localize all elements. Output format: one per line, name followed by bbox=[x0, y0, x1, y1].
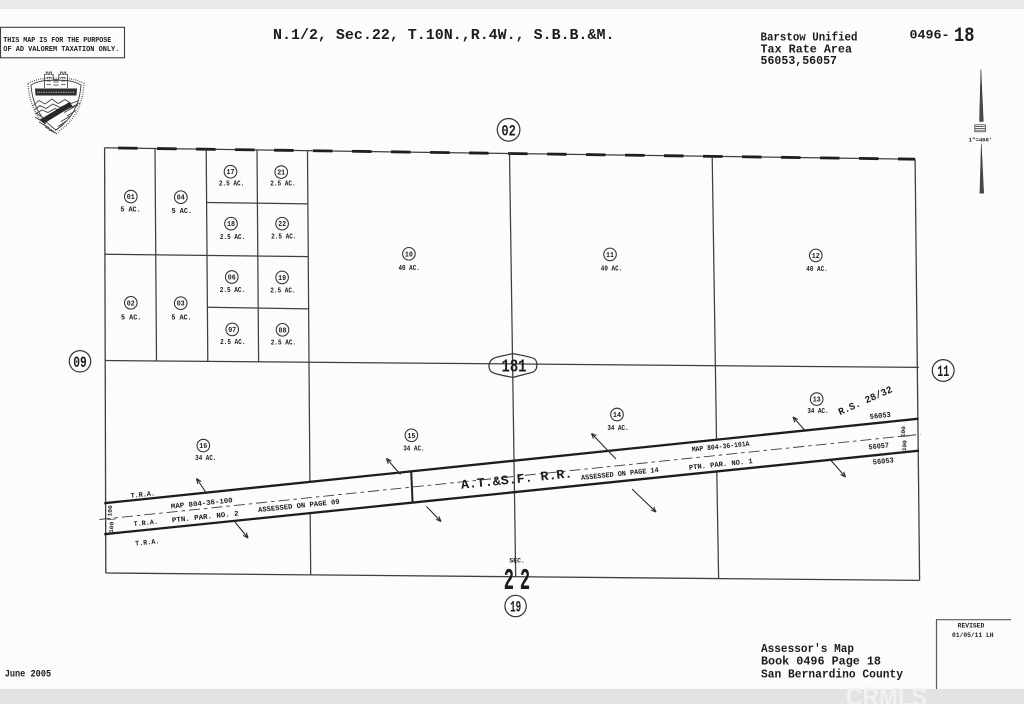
svg-text:5 AC.: 5 AC. bbox=[120, 206, 140, 214]
svg-text:22: 22 bbox=[278, 221, 286, 229]
svg-text:2.5 AC.: 2.5 AC. bbox=[270, 180, 295, 188]
svg-text:02: 02 bbox=[501, 122, 516, 140]
svg-text:19: 19 bbox=[510, 599, 521, 617]
svg-text:2.5 AC.: 2.5 AC. bbox=[270, 287, 295, 295]
svg-text:56053: 56053 bbox=[873, 457, 895, 467]
svg-text:2: 2 bbox=[504, 563, 514, 599]
svg-text:2.5 AC.: 2.5 AC. bbox=[219, 180, 244, 188]
svg-text:2.5 AC.: 2.5 AC. bbox=[220, 287, 245, 295]
svg-text:100: 100 bbox=[900, 425, 908, 437]
svg-text:14: 14 bbox=[613, 412, 621, 420]
svg-text:07: 07 bbox=[228, 327, 236, 335]
svg-text:19: 19 bbox=[278, 275, 286, 283]
svg-text:40 AC.: 40 AC. bbox=[806, 266, 828, 274]
svg-text:34 AC.: 34 AC. bbox=[403, 445, 424, 453]
svg-text:08: 08 bbox=[279, 327, 287, 335]
svg-text:12: 12 bbox=[812, 253, 820, 261]
svg-text:18: 18 bbox=[954, 25, 975, 48]
svg-text:2.5 AC.: 2.5 AC. bbox=[271, 233, 296, 241]
svg-text:2.5 AC.: 2.5 AC. bbox=[271, 340, 296, 348]
svg-text:T.R.A.: T.R.A. bbox=[133, 519, 158, 529]
svg-text:REVISED: REVISED bbox=[958, 623, 985, 630]
svg-text:02: 02 bbox=[127, 300, 135, 308]
svg-text:40 AC.: 40 AC. bbox=[601, 266, 623, 274]
svg-text:0496-: 0496- bbox=[910, 28, 950, 43]
svg-text:04: 04 bbox=[177, 195, 185, 203]
svg-text:100: 100 bbox=[901, 439, 909, 451]
svg-text:09: 09 bbox=[73, 354, 87, 372]
svg-text:34 AC.: 34 AC. bbox=[195, 455, 216, 463]
svg-text:03: 03 bbox=[177, 301, 185, 309]
svg-text:100: 100 bbox=[106, 505, 114, 517]
svg-text:2: 2 bbox=[520, 563, 530, 599]
svg-text:N.1/2, Sec.22, T.10N.,R.4W., S: N.1/2, Sec.22, T.10N.,R.4W., S.B.B.&M. bbox=[273, 28, 615, 44]
svg-text:13: 13 bbox=[813, 397, 821, 405]
svg-text:11: 11 bbox=[937, 363, 949, 381]
svg-text:40 AC.: 40 AC. bbox=[398, 265, 420, 273]
svg-text:THIS MAP IS FOR THE PURPOSE: THIS MAP IS FOR THE PURPOSE bbox=[3, 37, 111, 45]
svg-text:5 AC.: 5 AC. bbox=[171, 314, 191, 322]
svg-text:01/05/11 LH: 01/05/11 LH bbox=[952, 632, 994, 639]
svg-text:100: 100 bbox=[108, 521, 116, 533]
svg-text:56057: 56057 bbox=[868, 442, 889, 452]
svg-text:15: 15 bbox=[407, 433, 415, 441]
svg-text:T.R.A.: T.R.A. bbox=[135, 538, 160, 548]
svg-text:CRMLS: CRMLS bbox=[846, 682, 927, 704]
svg-text:21: 21 bbox=[277, 170, 285, 178]
svg-text:2.5 AC.: 2.5 AC. bbox=[220, 339, 245, 347]
svg-text:June 2005: June 2005 bbox=[5, 669, 52, 681]
svg-text:5 AC.: 5 AC. bbox=[172, 208, 192, 216]
svg-text:16: 16 bbox=[199, 443, 207, 451]
svg-text:5 AC.: 5 AC. bbox=[121, 314, 141, 322]
svg-text:OF AD VALOREM TAXATION ONLY.: OF AD VALOREM TAXATION ONLY. bbox=[3, 46, 119, 54]
svg-text:Assessor's Map: Assessor's Map bbox=[761, 643, 854, 656]
svg-text:06: 06 bbox=[228, 275, 236, 283]
svg-text:ASSESSED ON PAGE 09: ASSESSED ON PAGE 09 bbox=[258, 499, 340, 515]
svg-text:17: 17 bbox=[227, 169, 235, 177]
svg-text:181: 181 bbox=[502, 357, 527, 377]
svg-text:2.5 AC.: 2.5 AC. bbox=[220, 234, 245, 242]
svg-text:01: 01 bbox=[127, 194, 135, 202]
svg-text:56053: 56053 bbox=[870, 412, 892, 422]
svg-text:34 AC.: 34 AC. bbox=[807, 408, 828, 416]
svg-text:10: 10 bbox=[405, 251, 413, 259]
svg-text:MAP 804-36-100: MAP 804-36-100 bbox=[171, 497, 233, 511]
svg-text:18: 18 bbox=[227, 221, 235, 229]
svg-text:34 AC.: 34 AC. bbox=[607, 425, 628, 433]
svg-text:11: 11 bbox=[606, 252, 614, 260]
svg-text:San Bernardino County: San Bernardino County bbox=[761, 668, 903, 681]
svg-text:Book 0496 Page 18: Book 0496 Page 18 bbox=[761, 656, 881, 669]
svg-text:1"=400': 1"=400' bbox=[969, 137, 993, 144]
svg-text:56053,56057: 56053,56057 bbox=[761, 54, 838, 68]
